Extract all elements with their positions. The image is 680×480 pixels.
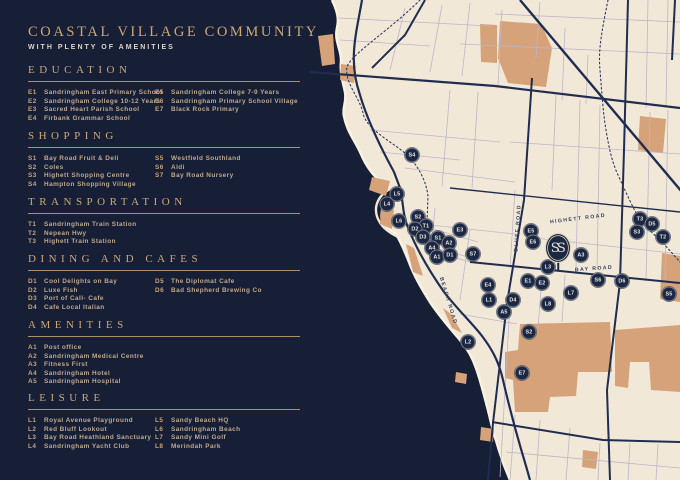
legend-item-code: D3 [28, 295, 44, 304]
legend-panel: COASTAL VILLAGE COMMUNITY WITH PLENTY OF… [0, 0, 310, 480]
legend-item: S7Bay Road Nursery [155, 172, 241, 181]
legend-item-code: E2 [28, 98, 44, 107]
legend-item-code: L4 [28, 443, 44, 452]
legend-item-label: Highett Shopping Centre [44, 172, 130, 181]
legend-item-code: T2 [28, 230, 44, 239]
section-column: L1Royal Avenue PlaygroundL2Red Bluff Loo… [28, 417, 151, 451]
legend-item-code: S3 [28, 172, 44, 181]
section-rule [28, 270, 300, 271]
section-column: T1Sandringham Train StationT2Nepean HwyT… [28, 221, 137, 247]
page-title: COASTAL VILLAGE COMMUNITY [28, 24, 319, 41]
legend-item-code: D6 [155, 287, 171, 296]
section-rule [28, 409, 300, 410]
legend-item: T1Sandringham Train Station [28, 221, 137, 230]
legend-item-label: Sandy Beach HQ [171, 417, 229, 426]
legend-item-code: D4 [28, 304, 44, 313]
legend-item: L8Merindah Park [155, 443, 240, 452]
legend-item-label: Royal Avenue Playground [44, 417, 133, 426]
section-header: TRANSPORTATION [28, 196, 300, 208]
legend-item-label: Sandringham Hospital [44, 378, 121, 387]
section-column: E5Sandringham College 7-9 YearsE6Sandrin… [155, 89, 298, 115]
legend-item: D2Luxe Fish [28, 287, 117, 296]
legend-item: E3Sacred Heart Parish School [28, 106, 163, 115]
section-leisure: LEISUREL1Royal Avenue PlaygroundL2Red Bl… [28, 392, 300, 417]
legend-item: A3Fitness First [28, 361, 144, 370]
legend-item-code: L2 [28, 426, 44, 435]
section-header: AMENITIES [28, 319, 300, 331]
legend-item: L7Sandy Mini Golf [155, 434, 240, 443]
legend-item-label: Cafe Local Italian [44, 304, 105, 313]
section-column: E1Sandringham East Primary SchoolE2Sandr… [28, 89, 163, 123]
legend-item-label: Firbank Grammar School [44, 115, 130, 124]
legend-item-code: S1 [28, 155, 44, 164]
legend-item-code: S6 [155, 164, 171, 173]
legend-item-code: E5 [155, 89, 171, 98]
legend-item-code: D1 [28, 278, 44, 287]
map-canvas [310, 0, 680, 480]
legend-item-label: Bay Road Heathland Sanctuary [44, 434, 151, 443]
legend-item-label: Sandringham Hotel [44, 370, 110, 379]
legend-item-label: Coles [44, 164, 64, 173]
section-column: D1Cool Delights on BayD2Luxe FishD3Port … [28, 278, 117, 312]
legend-item: E6Sandringham Primary School Village [155, 98, 298, 107]
legend-item: E2Sandringham College 10-12 Years [28, 98, 163, 107]
legend-item: L1Royal Avenue Playground [28, 417, 151, 426]
legend-item-code: S7 [155, 172, 171, 181]
legend-item-code: T3 [28, 238, 44, 247]
legend-item-code: L1 [28, 417, 44, 426]
legend-item-code: A1 [28, 344, 44, 353]
section-column: L5Sandy Beach HQL6Sandringham BeachL7San… [155, 417, 240, 451]
legend-item-label: Sandringham Medical Centre [44, 353, 144, 362]
section-header: EDUCATION [28, 64, 300, 76]
legend-item-label: The Diplomat Cafe [171, 278, 235, 287]
legend-item-label: Black Rock Primary [171, 106, 239, 115]
legend-item: L6Sandringham Beach [155, 426, 240, 435]
section-shopping: SHOPPINGS1Bay Road Fruit & DeliS2ColesS3… [28, 130, 300, 155]
legend-item: T3Highett Train Station [28, 238, 137, 247]
legend-item: L2Red Bluff Lookout [28, 426, 151, 435]
legend-item: A5Sandringham Hospital [28, 378, 144, 387]
section-column: D5The Diplomat CafeD6Bad Shepherd Brewin… [155, 278, 262, 295]
section-header: LEISURE [28, 392, 300, 404]
legend-item-code: D2 [28, 287, 44, 296]
section-rule [28, 213, 300, 214]
legend-item: S4Hampton Shopping Village [28, 181, 136, 190]
section-column: S5Westfield SouthlandS6AldiS7Bay Road Nu… [155, 155, 241, 181]
legend-item-code: E3 [28, 106, 44, 115]
legend-item: A2Sandringham Medical Centre [28, 353, 144, 362]
legend-item-label: Bay Road Nursery [171, 172, 234, 181]
legend-item: S5Westfield Southland [155, 155, 241, 164]
legend-item-label: Sandringham Yacht Club [44, 443, 129, 452]
legend-item-label: Port of Call- Cafe [44, 295, 104, 304]
section-column: S1Bay Road Fruit & DeliS2ColesS3Highett … [28, 155, 136, 189]
legend-item: S6Aldi [155, 164, 241, 173]
legend-item-label: Aldi [171, 164, 185, 173]
legend-item-label: Sandy Mini Golf [171, 434, 226, 443]
legend-item-label: Fitness First [44, 361, 88, 370]
legend-item: S2Coles [28, 164, 136, 173]
legend-item-label: Highett Train Station [44, 238, 116, 247]
legend-item: D5The Diplomat Cafe [155, 278, 262, 287]
legend-item-code: E6 [155, 98, 171, 107]
legend-item: D3Port of Call- Cafe [28, 295, 117, 304]
section-rule [28, 336, 300, 337]
legend-item-code: S4 [28, 181, 44, 190]
legend-item-code: S5 [155, 155, 171, 164]
section-header: SHOPPING [28, 130, 300, 142]
legend-item: D1Cool Delights on Bay [28, 278, 117, 287]
legend-item-label: Post office [44, 344, 82, 353]
legend-item-label: Sacred Heart Parish School [44, 106, 140, 115]
legend-item-label: Hampton Shopping Village [44, 181, 136, 190]
page-subtitle: WITH PLENTY OF AMENITIES [28, 44, 175, 51]
section-header: DINING AND CAFES [28, 253, 300, 265]
legend-item: D4Cafe Local Italian [28, 304, 117, 313]
legend-item-label: Sandringham Beach [171, 426, 240, 435]
legend-item-code: E1 [28, 89, 44, 98]
legend-item: L5Sandy Beach HQ [155, 417, 240, 426]
legend-item: D6Bad Shepherd Brewing Co [155, 287, 262, 296]
legend-item-code: L7 [155, 434, 171, 443]
legend-item: L3Bay Road Heathland Sanctuary [28, 434, 151, 443]
legend-item-code: A5 [28, 378, 44, 387]
legend-item-code: L3 [28, 434, 44, 443]
legend-item-code: L8 [155, 443, 171, 452]
legend-item-code: T1 [28, 221, 44, 230]
section-transportation: TRANSPORTATIONT1Sandringham Train Statio… [28, 196, 300, 221]
legend-item-label: Sandringham College 10-12 Years [44, 98, 160, 107]
section-amenities: AMENITIESA1Post officeA2Sandringham Medi… [28, 319, 300, 344]
legend-item-label: Bad Shepherd Brewing Co [171, 287, 262, 296]
legend-item-label: Westfield Southland [171, 155, 241, 164]
section-column: A1Post officeA2Sandringham Medical Centr… [28, 344, 144, 387]
legend-item: L4Sandringham Yacht Club [28, 443, 151, 452]
legend-item: A1Post office [28, 344, 144, 353]
legend-item-code: L5 [155, 417, 171, 426]
legend-item: S3Highett Shopping Centre [28, 172, 136, 181]
legend-item-label: Bay Road Fruit & Deli [44, 155, 119, 164]
legend-item-code: L6 [155, 426, 171, 435]
legend-item-label: Red Bluff Lookout [44, 426, 107, 435]
legend-item: E1Sandringham East Primary School [28, 89, 163, 98]
legend-item-label: Sandringham College 7-9 Years [171, 89, 279, 98]
legend-item-label: Cool Delights on Bay [44, 278, 117, 287]
legend-item-label: Luxe Fish [44, 287, 78, 296]
legend-item-code: E7 [155, 106, 171, 115]
legend-item-code: S2 [28, 164, 44, 173]
legend-item-code: D5 [155, 278, 171, 287]
legend-item-label: Nepean Hwy [44, 230, 87, 239]
legend-item: E5Sandringham College 7-9 Years [155, 89, 298, 98]
legend-item: A4Sandringham Hotel [28, 370, 144, 379]
legend-item-label: Sandringham East Primary School [44, 89, 163, 98]
legend-item-label: Sandringham Primary School Village [171, 98, 298, 107]
legend-item-code: A2 [28, 353, 44, 362]
section-education: EDUCATIONE1Sandringham East Primary Scho… [28, 64, 300, 89]
legend-item: E7Black Rock Primary [155, 106, 298, 115]
poster: COASTAL VILLAGE COMMUNITY WITH PLENTY OF… [0, 0, 680, 480]
legend-item-code: E4 [28, 115, 44, 124]
legend-item-code: A3 [28, 361, 44, 370]
legend-item: T2Nepean Hwy [28, 230, 137, 239]
section-rule [28, 81, 300, 82]
section-dining-and-cafes: DINING AND CAFESD1Cool Delights on BayD2… [28, 253, 300, 278]
legend-item-label: Merindah Park [171, 443, 221, 452]
legend-item-code: A4 [28, 370, 44, 379]
legend-item: S1Bay Road Fruit & Deli [28, 155, 136, 164]
section-rule [28, 147, 300, 148]
legend-item: E4Firbank Grammar School [28, 115, 163, 124]
legend-item-label: Sandringham Train Station [44, 221, 137, 230]
